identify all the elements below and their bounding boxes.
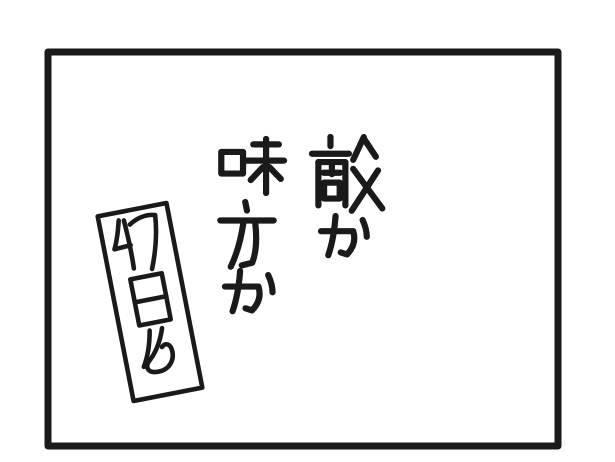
day-label-box <box>98 203 203 401</box>
caption-left-column <box>220 139 284 311</box>
glyph-ka <box>321 216 367 255</box>
caption-right-column <box>312 137 382 255</box>
glyph-4 <box>109 219 135 271</box>
glyph-ka-2 <box>225 271 273 311</box>
glyph-hi <box>130 273 170 325</box>
glyph-me <box>137 327 175 374</box>
comic-panel <box>0 0 615 462</box>
glyph-kata <box>220 202 273 267</box>
glyph-teki <box>312 137 382 211</box>
glyph-mi <box>221 139 284 193</box>
comic-page: 敵か 味方か 47日め <box>0 0 615 462</box>
